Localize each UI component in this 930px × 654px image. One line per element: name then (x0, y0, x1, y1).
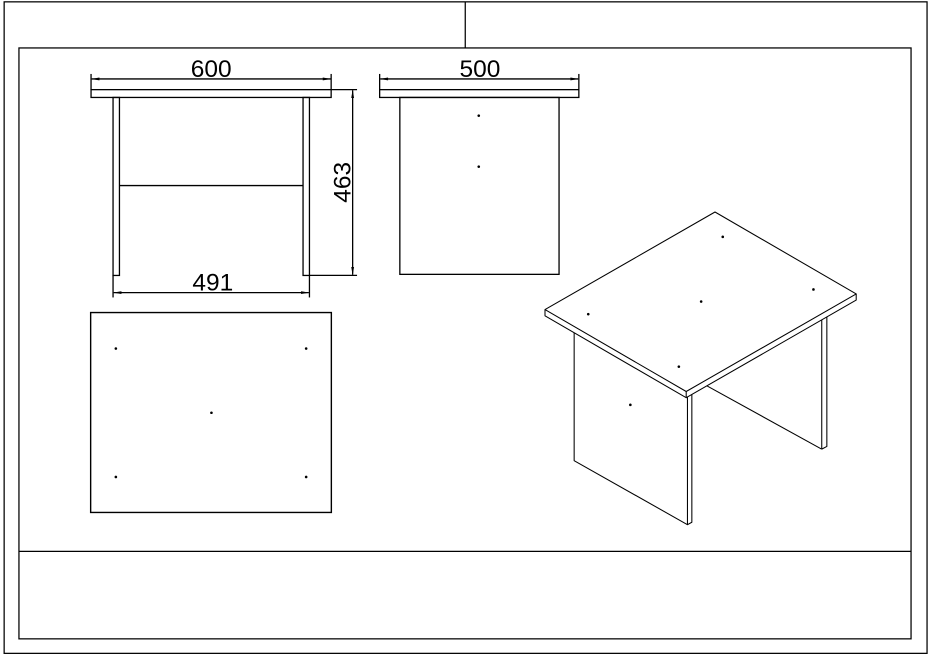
svg-text:500: 500 (460, 56, 501, 83)
svg-text:600: 600 (191, 56, 232, 83)
svg-text:463: 463 (329, 162, 356, 203)
svg-text:491: 491 (192, 270, 233, 297)
